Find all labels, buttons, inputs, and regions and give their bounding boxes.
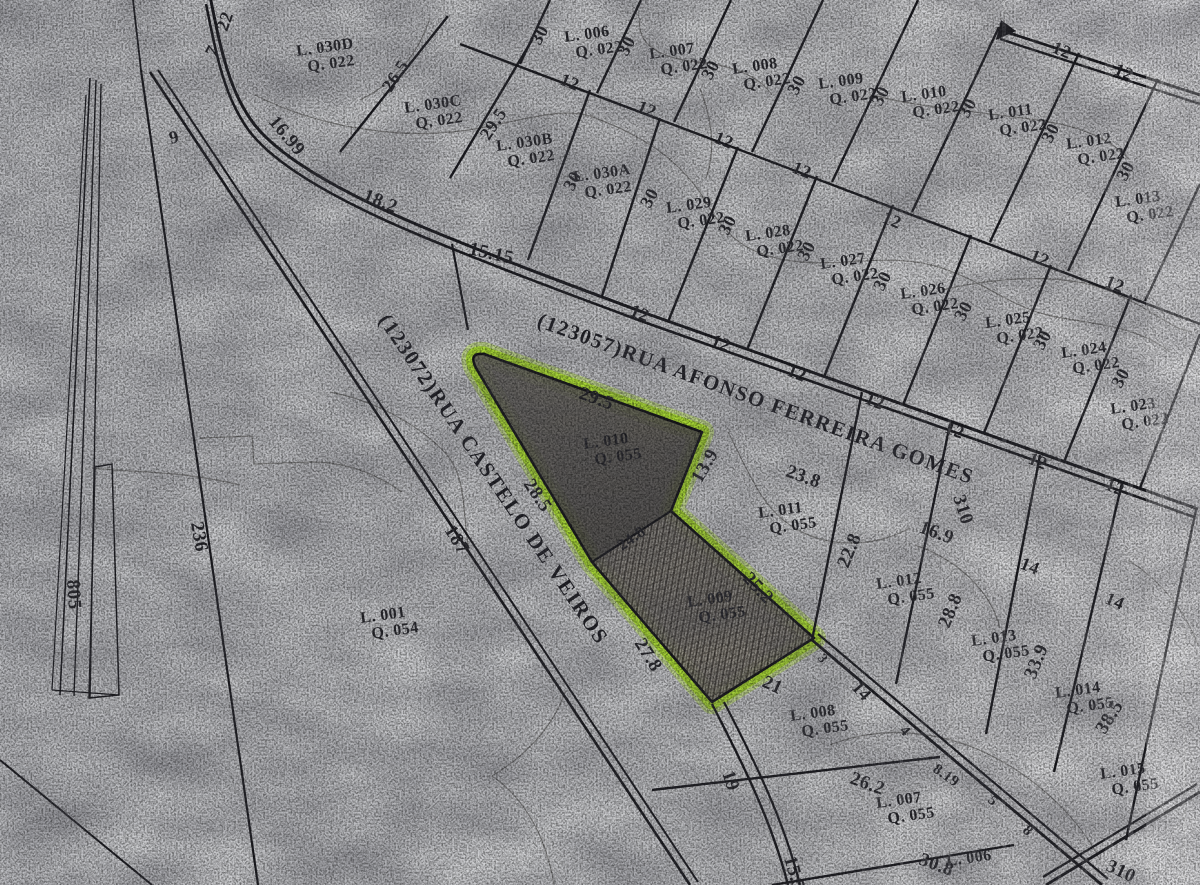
map-canvas: (123057)RUA AFONSO FERREIRA GOMES(123072…: [0, 0, 1200, 885]
paper-noise-overlay: [0, 0, 1200, 885]
cadastral-map-scan: (123057)RUA AFONSO FERREIRA GOMES(123072…: [0, 0, 1200, 885]
